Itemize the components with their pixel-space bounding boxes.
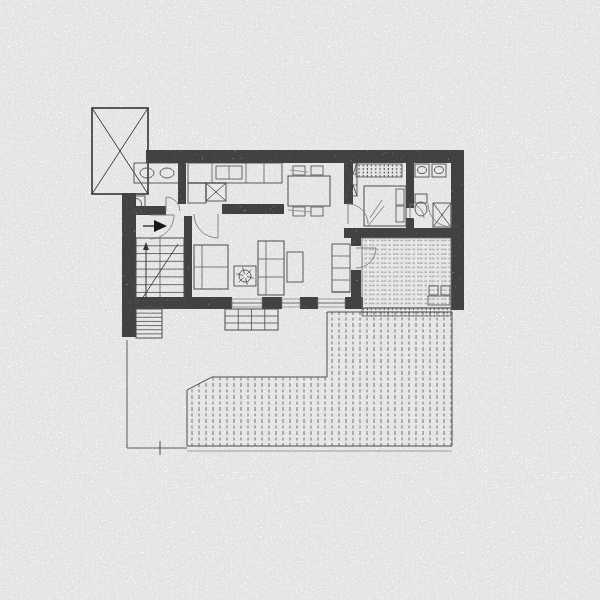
wall-kitchen-peninsula-texture (222, 204, 284, 214)
bath-basin-2 (160, 168, 174, 178)
coffee-table (234, 266, 256, 286)
bath-vanity (134, 163, 180, 183)
dining-table (288, 176, 330, 206)
dining-chair-2 (311, 166, 323, 175)
floor-plan-scan (0, 0, 600, 600)
wall-top-texture (146, 150, 464, 163)
dining-chair-4 (311, 207, 323, 216)
terrace-railing (362, 308, 451, 316)
pencil-smudge-b (288, 210, 312, 212)
sofa-right (258, 241, 284, 295)
entry-direction-arrow (154, 220, 167, 232)
side-table (287, 252, 303, 282)
bedroom-closet (356, 164, 402, 177)
bed-pillow-2 (396, 206, 404, 222)
bedroom-door-swing (348, 204, 368, 224)
bathroom-door-swing (166, 197, 180, 211)
floor-plan-drawing (0, 0, 600, 600)
lower-deck-planking (187, 312, 452, 446)
wall-bottom-pier-c-texture (300, 297, 318, 309)
bath-basin-1 (140, 168, 154, 178)
wall-ensuite-west-b-texture (406, 218, 414, 228)
bed-pillow-1 (396, 189, 404, 205)
kitchen-oven (188, 183, 206, 203)
upper-terrace-planking (362, 238, 451, 308)
wall-terrace-west-a-texture (351, 228, 361, 246)
wall-stair-east-texture (184, 216, 192, 308)
wall-bottom-a-texture (122, 297, 232, 309)
hall-door-swing (194, 214, 218, 238)
wall-bottom-pier-b-texture (262, 297, 282, 309)
wall-ensuite-west-a-texture (406, 162, 414, 208)
ensuite-basin-1 (418, 167, 427, 174)
blanket-fold-a (370, 200, 382, 218)
plan-content (92, 108, 464, 455)
wall-terrace-west-b-texture (351, 270, 361, 309)
ensuite-basin-2 (435, 167, 444, 174)
